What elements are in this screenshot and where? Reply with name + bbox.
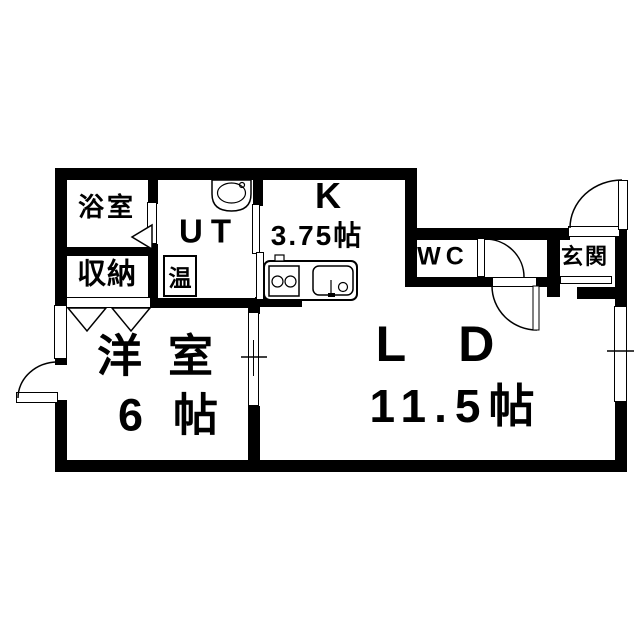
stove-knob — [275, 255, 284, 261]
living-dining-label: LD — [376, 319, 547, 369]
storage-label: 収納 — [77, 261, 137, 290]
bath-door-triangle — [132, 225, 152, 249]
entrance-label: 玄関 — [561, 246, 609, 268]
bathroom-label: 浴室 — [78, 194, 136, 220]
utility-label: UT — [179, 215, 239, 248]
closet-door-triangle-right — [112, 308, 150, 331]
sink-tap-base — [328, 293, 335, 297]
kitchen-size-label: 3.75帖 — [271, 222, 364, 250]
wc-door-arc — [485, 239, 524, 277]
western-room-size-label: 6帖 — [118, 393, 248, 438]
western-room-label: 洋室 — [97, 334, 239, 379]
closet-door-triangle-left — [68, 308, 106, 331]
stove-icon — [269, 266, 299, 296]
kitchen-label: K — [315, 178, 341, 214]
entrance-door-arc — [570, 180, 622, 228]
floor-plan: 浴室 収納 UT K 3.75帖 WC 玄関 洋室 6帖 LD 11.5帖 温 — [0, 0, 639, 640]
toilet-label: WC — [417, 245, 469, 270]
living-dining-size-label: 11.5帖 — [370, 383, 543, 429]
sink-icon — [313, 266, 353, 295]
water-heater-label: 温 — [169, 259, 192, 293]
water-heater-box: 温 — [163, 255, 197, 297]
west-door-arc — [18, 362, 58, 398]
